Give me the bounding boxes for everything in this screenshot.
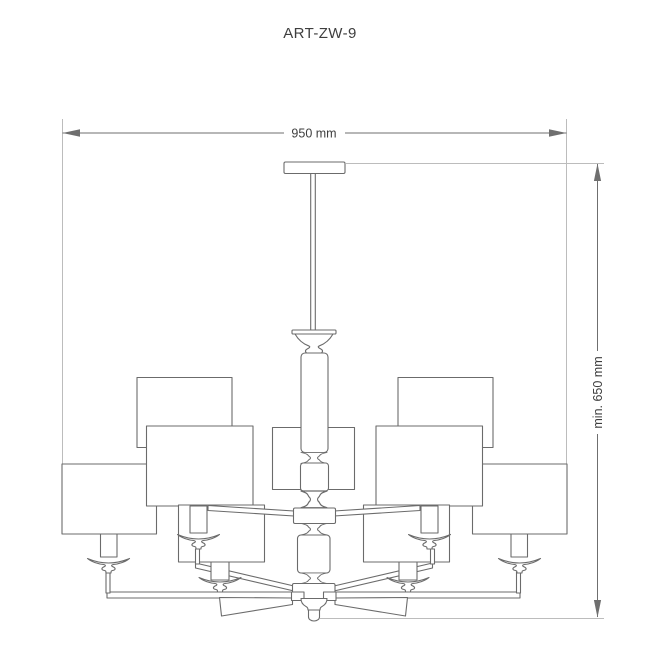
- lampshade-far-left: [62, 464, 157, 534]
- lower-arm-left: [107, 592, 304, 598]
- front-arm-right: [335, 598, 408, 617]
- column-connector: [301, 524, 327, 535]
- product-code: ART-ZW-9: [283, 25, 356, 42]
- lower-arm-right: [324, 592, 521, 598]
- height-dimension: min. 650 mm: [591, 164, 605, 618]
- column-lower-block: [298, 535, 331, 573]
- front-arm-left: [220, 598, 293, 617]
- lampshade-mid-right: [376, 426, 483, 506]
- dimension-arrow-right-icon: [549, 129, 567, 136]
- chandelier-dimension-diagram: ART-ZW-9 950 mm min. 650 mm: [0, 0, 650, 650]
- dimension-arrow-left-icon: [63, 129, 81, 136]
- chandelier-drawing: [62, 162, 567, 621]
- candle-cup-icon: [88, 559, 130, 574]
- column-small-block: [301, 463, 329, 491]
- lampshade-mid-left: [147, 426, 254, 506]
- technical-drawing-page: ART-ZW-9 950 mm min. 650 mm: [0, 0, 650, 650]
- column-connector: [301, 573, 327, 584]
- dimension-arrow-down-icon: [594, 600, 601, 618]
- ceiling-canopy: [284, 162, 345, 174]
- candle-far-right: [499, 534, 541, 593]
- width-dimension: 950 mm: [63, 127, 567, 141]
- slant-arm-left: [196, 563, 295, 591]
- slant-arm-right: [334, 563, 433, 591]
- width-dimension-label: 950 mm: [291, 127, 336, 141]
- bottom-cap: [301, 599, 327, 611]
- candle-cup-icon: [499, 559, 541, 574]
- candle-far-left: [88, 534, 130, 593]
- top-finial: [292, 330, 336, 353]
- upper-hub: [294, 508, 336, 524]
- column-connector: [301, 491, 327, 508]
- lampshade-far-right: [473, 464, 568, 534]
- dimension-arrow-up-icon: [594, 164, 601, 182]
- bottom-finial: [309, 610, 320, 621]
- height-dimension-label: min. 650 mm: [591, 356, 605, 428]
- column-upper-segment: [301, 353, 328, 453]
